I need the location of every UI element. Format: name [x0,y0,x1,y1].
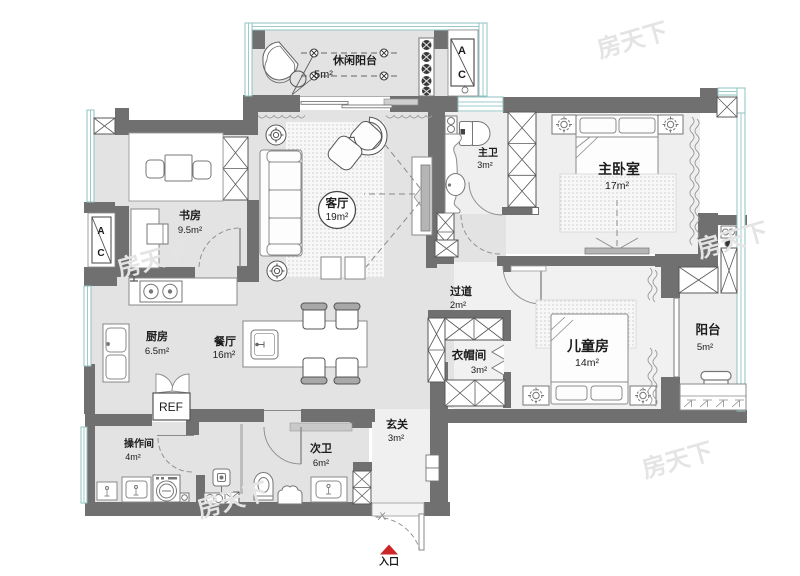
svg-text:C: C [97,248,104,259]
svg-text:主卧室: 主卧室 [598,161,640,177]
svg-text:主卫: 主卫 [478,146,498,159]
svg-text:阳台: 阳台 [695,322,720,337]
svg-text:2m²: 2m² [450,300,466,311]
svg-text:16m²: 16m² [213,350,236,361]
svg-text:操作间: 操作间 [124,437,154,450]
svg-text:衣帽间: 衣帽间 [452,348,487,362]
svg-text:客厅: 客厅 [325,196,349,210]
svg-text:A: A [458,45,466,57]
svg-text:14m²: 14m² [575,357,599,369]
svg-text:3m²: 3m² [388,433,404,444]
svg-text:玄关: 玄关 [386,417,408,431]
svg-text:17m²: 17m² [605,180,629,192]
svg-text:A: A [97,226,104,237]
svg-text:9.5m²: 9.5m² [178,225,202,236]
svg-text:REF: REF [159,400,183,414]
svg-text:次卫: 次卫 [310,441,332,455]
svg-text:5m²: 5m² [314,69,333,81]
svg-text:6.5m²: 6.5m² [145,346,169,357]
svg-text:C: C [458,69,466,81]
svg-text:4m²: 4m² [125,452,141,462]
svg-text:儿童房: 儿童房 [566,338,609,354]
svg-text:入口: 入口 [379,556,399,568]
svg-text:5m²: 5m² [697,342,713,353]
svg-text:3m²: 3m² [471,365,487,376]
svg-text:厨房: 厨房 [146,329,168,343]
svg-text:6m²: 6m² [313,458,329,469]
svg-text:19m²: 19m² [326,212,349,223]
svg-text:3m²: 3m² [477,160,493,170]
svg-text:过道: 过道 [450,284,472,298]
svg-text:书房: 书房 [179,208,201,222]
svg-text:餐厅: 餐厅 [213,334,236,348]
svg-text:休闲阳台: 休闲阳台 [332,53,377,67]
